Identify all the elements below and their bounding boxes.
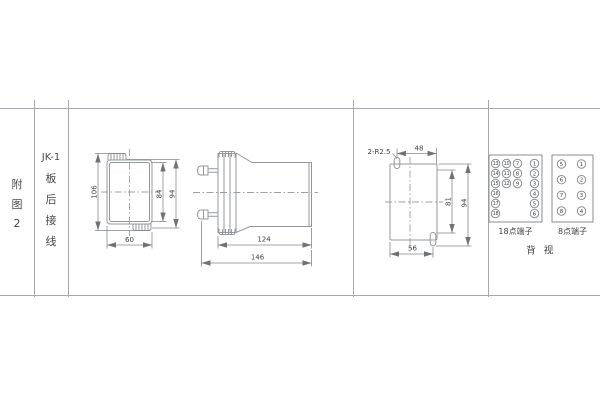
terminal-block-top-side bbox=[219, 152, 235, 158]
terminal-block-bottom-hatch bbox=[136, 225, 148, 231]
terminal-number: 14 bbox=[493, 171, 499, 177]
terminal-block-bottom-side bbox=[219, 229, 235, 235]
mounting-slot-top bbox=[394, 158, 400, 169]
terminal-number: 2 bbox=[533, 171, 536, 177]
side-view: 124 146 bbox=[193, 152, 318, 267]
terminal-number: 6 bbox=[560, 178, 564, 184]
terminal-8pt-box bbox=[552, 155, 593, 222]
mounting-slot-bottom bbox=[430, 233, 436, 246]
dim-label-60: 60 bbox=[125, 236, 134, 244]
terminal-number: 8 bbox=[516, 171, 520, 177]
terminal-number: 7 bbox=[560, 193, 563, 199]
terminal-number: 3 bbox=[533, 181, 536, 187]
terminal-18pt-caption: 18点端子 bbox=[498, 226, 532, 236]
radius-note-label: 2-R2.5 bbox=[368, 148, 391, 156]
terminal-number: 10 bbox=[504, 161, 510, 167]
dim-label-146: 146 bbox=[251, 254, 265, 262]
dim-label-94: 94 bbox=[169, 189, 177, 198]
terminal-number: 6 bbox=[533, 211, 537, 217]
panel-cutout-view: 2-R2.5 48 81 94 56 bbox=[368, 145, 472, 258]
dim-label-56: 56 bbox=[408, 245, 417, 253]
terminal-number: 16 bbox=[493, 191, 499, 197]
rear-view-label: 背 视 bbox=[526, 245, 556, 257]
terminal-number: 18 bbox=[493, 211, 499, 217]
terminals-panel: 13 14 15 16 17 18 10 11 12 7 8 9 1 2 3 4… bbox=[489, 155, 593, 257]
terminal-number: 3 bbox=[580, 193, 583, 199]
terminal-number: 4 bbox=[533, 191, 537, 197]
terminal-8pt-caption: 8点端子 bbox=[558, 226, 587, 236]
dim-label-84: 84 bbox=[156, 189, 164, 198]
flange-plate bbox=[218, 154, 236, 233]
terminal-number: 1 bbox=[580, 162, 583, 168]
terminal-number: 15 bbox=[493, 181, 499, 187]
terminal-number: 11 bbox=[504, 171, 510, 177]
dim-label-48: 48 bbox=[415, 145, 424, 153]
terminal-number: 13 bbox=[493, 161, 499, 167]
terminal-number: 12 bbox=[504, 181, 510, 187]
front-view: 106 84 94 60 bbox=[91, 149, 180, 249]
terminal-18pt-circles: 13 14 15 16 17 18 10 11 12 7 8 9 1 2 3 4… bbox=[491, 159, 538, 217]
terminal-number: 5 bbox=[533, 201, 536, 207]
terminal-block-top-hatch bbox=[111, 154, 123, 160]
dim-label-81: 81 bbox=[445, 197, 453, 206]
dim-label-94-cutout: 94 bbox=[461, 198, 469, 207]
dim-label-106: 106 bbox=[91, 185, 99, 199]
terminal-screw-top bbox=[198, 166, 219, 175]
terminal-screw-bottom bbox=[198, 210, 219, 219]
terminal-number: 2 bbox=[580, 178, 583, 184]
terminal-number: 9 bbox=[516, 181, 520, 187]
terminal-number: 7 bbox=[516, 161, 519, 167]
drawing-sheet: 附 图 2 JK-1 板 后 接 线 bbox=[0, 0, 600, 400]
terminal-number: 5 bbox=[560, 162, 563, 168]
technical-drawing: 106 84 94 60 bbox=[0, 0, 600, 400]
dim-label-124: 124 bbox=[257, 236, 271, 244]
terminal-number: 4 bbox=[580, 209, 584, 215]
terminal-number: 17 bbox=[493, 201, 499, 207]
terminal-8pt-circles: 5 6 7 8 1 2 3 4 bbox=[557, 160, 585, 215]
terminal-number: 8 bbox=[560, 209, 564, 215]
terminal-number: 1 bbox=[533, 161, 536, 167]
flange-inner-lines bbox=[224, 154, 230, 233]
